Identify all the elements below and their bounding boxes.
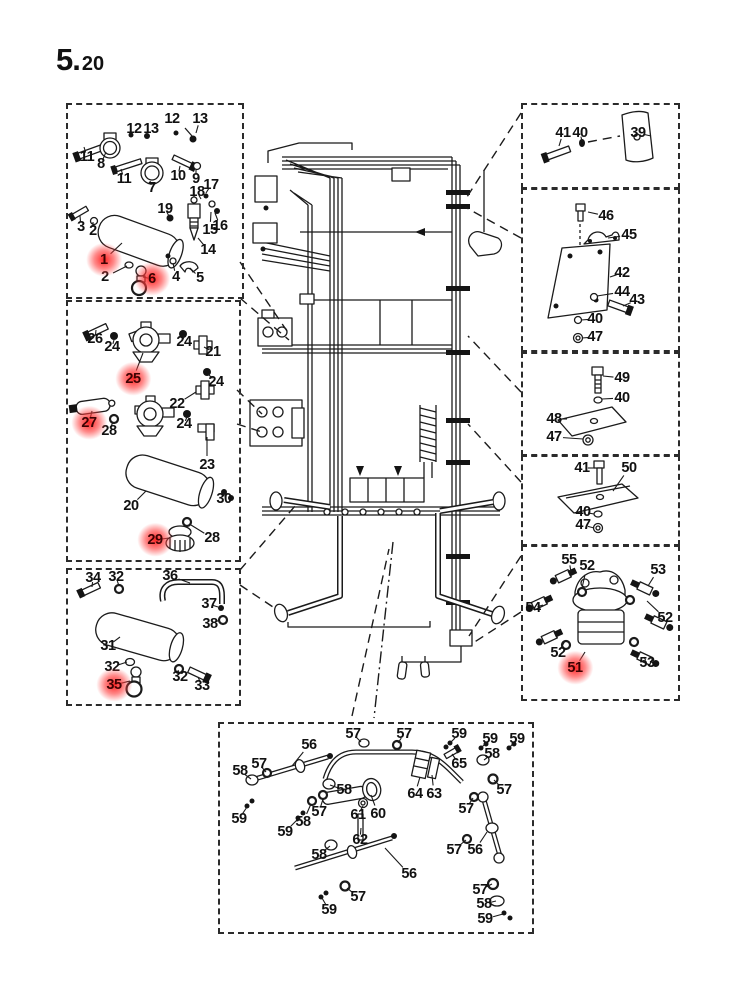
leader-line <box>117 581 119 586</box>
leader-line <box>215 213 218 220</box>
leader-line <box>644 134 651 136</box>
leader-line <box>371 795 375 806</box>
leader-line <box>385 848 403 867</box>
leader-line <box>561 641 565 648</box>
leader-line <box>191 525 204 533</box>
leader-line <box>179 166 180 172</box>
leader-line <box>121 681 130 683</box>
leader-line <box>292 752 303 766</box>
leader-line <box>347 888 353 893</box>
leader-line <box>602 398 613 399</box>
leader-line <box>417 777 420 786</box>
leader-line <box>113 637 120 642</box>
leader-line <box>121 169 123 175</box>
leader-line <box>647 601 658 612</box>
leader-line <box>208 374 212 378</box>
leader-line <box>206 189 209 193</box>
leader-line <box>137 491 146 500</box>
leader-line <box>538 605 544 607</box>
leader-line <box>644 657 646 660</box>
leader-line <box>588 526 594 528</box>
leader-line <box>432 775 433 785</box>
leader-line <box>183 335 184 339</box>
leader-line <box>111 422 113 427</box>
leader-line <box>588 513 594 514</box>
leader-line <box>196 125 198 133</box>
leader-line <box>143 277 148 278</box>
leader-line <box>245 775 251 779</box>
leader-line <box>262 768 266 772</box>
leader-line <box>307 804 311 814</box>
leader-line <box>581 319 589 320</box>
leader-line <box>623 303 631 306</box>
leader-line <box>119 662 127 665</box>
leader-line <box>360 806 363 811</box>
leader-line <box>603 376 613 377</box>
parts-catalog-page: 5. 20 <box>0 0 739 1000</box>
leader-line <box>484 757 488 760</box>
figure-number-minor: 20 <box>82 53 104 76</box>
leader-line <box>215 620 221 622</box>
leader-line <box>103 152 106 159</box>
leader-line <box>582 337 589 338</box>
leader-line <box>111 243 122 254</box>
leader-line <box>198 238 204 245</box>
leader-line <box>459 840 466 846</box>
leader-line <box>204 347 209 350</box>
leader-line <box>510 743 514 747</box>
leader-line <box>178 579 190 583</box>
leader-line <box>360 828 361 835</box>
leader-line <box>150 181 151 185</box>
leader-line <box>161 538 169 539</box>
leader-line <box>243 807 247 814</box>
leader-line <box>167 212 169 216</box>
leader-line <box>450 738 455 743</box>
leader-line <box>610 275 617 277</box>
leader-line <box>582 575 585 588</box>
leader-line <box>185 417 187 421</box>
leader-line <box>198 677 200 682</box>
leader-line <box>485 884 492 887</box>
leader-line <box>84 147 86 153</box>
leader-line <box>480 832 487 843</box>
leader-line <box>559 139 561 146</box>
leader-line <box>95 330 96 335</box>
leader-line <box>330 785 338 788</box>
leader-line <box>113 340 114 344</box>
leader-line <box>291 819 298 826</box>
leader-line <box>190 268 196 274</box>
leader-line <box>482 743 486 747</box>
leader-line <box>597 293 613 296</box>
leader-lines-layer <box>0 0 739 1000</box>
leader-line <box>321 799 323 806</box>
figure-number-major: 5. <box>56 42 80 78</box>
leader-line <box>613 475 624 491</box>
leader-line <box>398 738 401 743</box>
leader-line <box>213 605 218 607</box>
leader-line <box>80 216 81 222</box>
leader-line <box>185 392 196 399</box>
leader-line <box>588 212 598 214</box>
leader-line <box>178 670 179 674</box>
leader-line <box>580 652 586 661</box>
leader-line <box>324 846 330 851</box>
leader-line <box>608 236 620 238</box>
leader-line <box>489 901 496 903</box>
leader-line <box>199 195 201 199</box>
leader-line <box>113 266 127 273</box>
leader-line <box>493 914 503 917</box>
leader-line <box>357 738 361 742</box>
page-title: 5. 20 <box>56 42 104 78</box>
leader-line <box>92 582 93 587</box>
leader-line <box>581 137 582 141</box>
leader-line <box>210 212 211 222</box>
leader-line <box>322 898 326 905</box>
leader-line <box>452 754 456 760</box>
leader-line <box>648 577 654 586</box>
leader-line <box>570 565 571 572</box>
leader-line <box>494 780 500 786</box>
leader-line <box>563 438 583 439</box>
leader-line <box>90 411 92 418</box>
leader-line <box>173 263 175 271</box>
leader-line <box>136 353 143 371</box>
leader-line <box>469 798 473 804</box>
